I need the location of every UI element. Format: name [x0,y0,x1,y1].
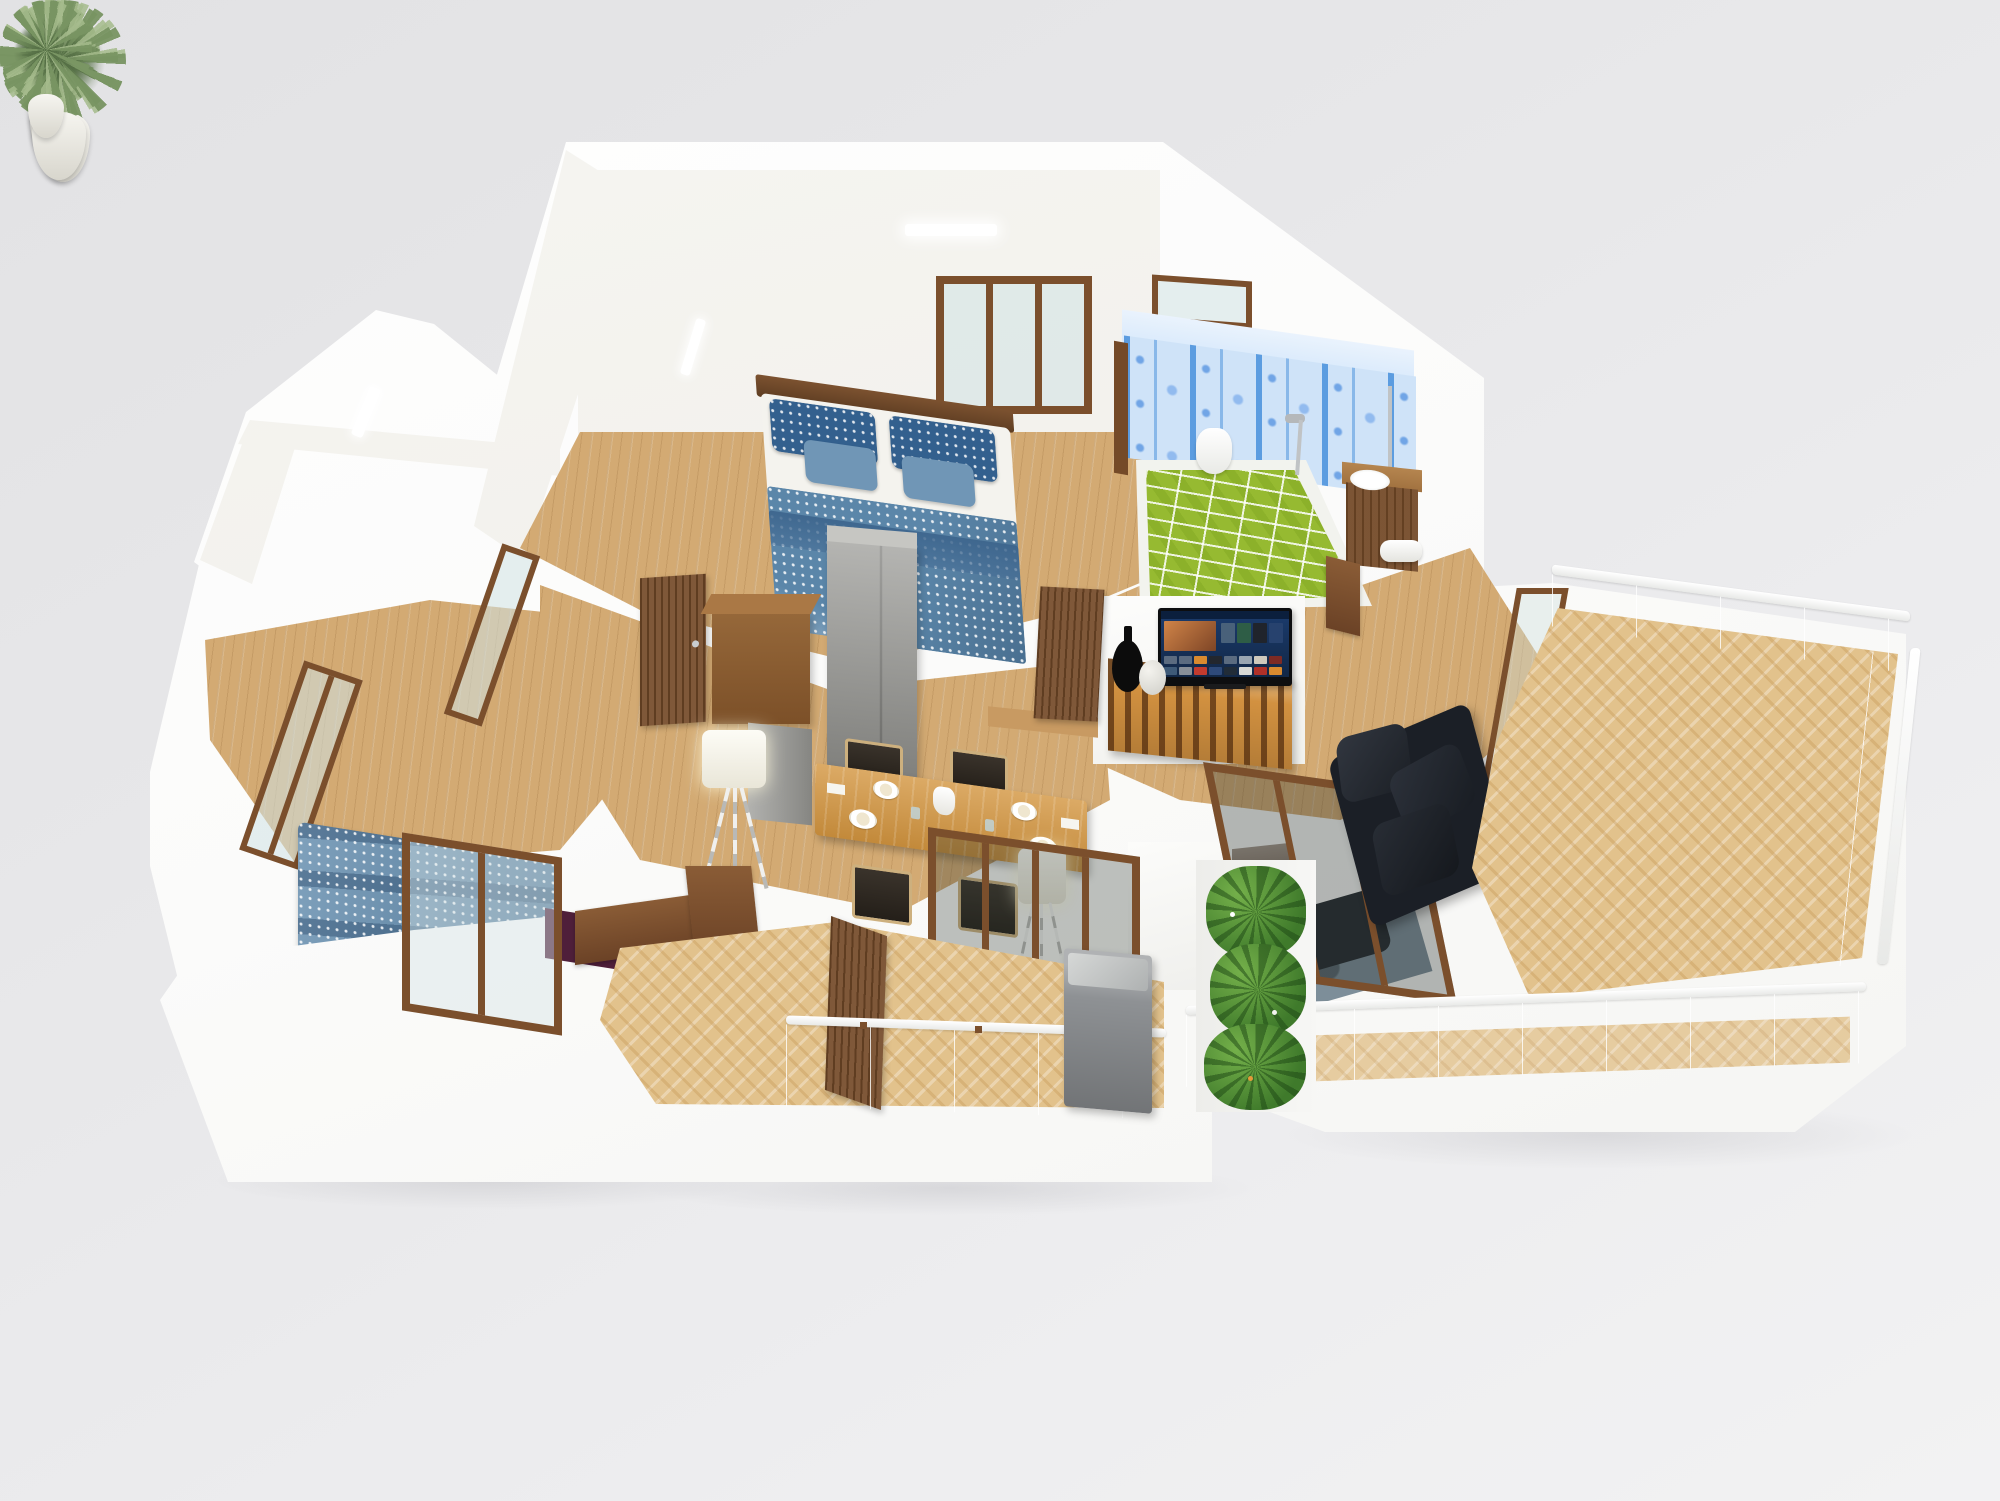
tv-app-tile [1179,667,1192,675]
tv-app-tile [1209,656,1222,664]
potted-plant-bedroom-right [0,170,98,338]
planter-plants [1204,1024,1306,1110]
tv-app-tile [1269,623,1283,643]
cabinet-top-face [701,594,822,614]
tv-app-tiles-row1 [1164,656,1282,664]
glazing-mullion [1032,850,1039,977]
tv [1158,608,1292,686]
potted-plant-hall [0,338,126,524]
potted-plant-sofa [0,524,96,634]
napkin [827,783,845,796]
plate [873,779,899,801]
tv-app-tile [1194,667,1207,675]
tv-stand [1204,684,1246,689]
tv-app-tile [1237,623,1251,643]
tv-app-tile [1254,656,1267,664]
bedroom-open-door [640,574,706,727]
tv-app-tile [1254,667,1267,675]
lamp-shade [702,730,766,788]
bed-glass-screen [402,832,562,1035]
ceiling-light-bar [905,224,997,236]
screen-mullion [478,852,485,1015]
floorplan-scene [0,0,2000,1501]
plant-leaves [0,0,92,100]
bedroom-triple-window [936,276,1092,414]
hall-open-door [1034,586,1105,721]
white-vase [1139,660,1166,695]
plate [1011,800,1037,822]
toilet [1196,428,1232,474]
rail-clip [975,1026,982,1033]
tv-app-tile [1269,656,1282,664]
rail-clip [860,1022,867,1029]
tv-app-tile [1253,623,1267,643]
towel-roll [1380,540,1422,562]
tv-app-tile [1209,667,1222,675]
tv-app-tile [1164,667,1177,675]
dining-chair [852,864,912,926]
window-mullion [1035,284,1042,406]
planter-niche [1196,860,1316,1112]
black-vase-body [1112,640,1143,692]
tv-app-tiles-row2 [1164,667,1282,675]
tv-screen [1161,611,1289,677]
tub-side-panel [1326,556,1360,636]
window-mullion [986,284,993,406]
tv-featured-image [1164,621,1216,651]
jug [933,785,955,816]
tv-header-bar [1161,611,1289,619]
wood-cabinet [712,612,810,724]
glass-cup [911,806,920,819]
shower-pole-2 [1388,386,1392,472]
bathroom-door-trim [1114,341,1128,475]
tv-app-tile [1224,667,1237,675]
potted-plant-terrace [0,634,118,820]
tv-app-tile [1239,656,1252,664]
door-handle [692,640,699,647]
tv-thumbnails [1221,623,1283,643]
glass-cup [985,819,994,832]
outdoor-appliance [1064,948,1152,1114]
tv-app-tile [1194,656,1207,664]
tv-app-tile [1221,623,1235,643]
tv-app-tile [1164,656,1177,664]
tv-app-tile [1224,656,1237,664]
napkin [1061,817,1079,830]
planter-plants [1210,944,1306,1036]
tv-app-tile [1179,656,1192,664]
planter-flower [1230,912,1235,917]
appliance-lid [1068,953,1148,992]
planter-flower [1248,1076,1253,1081]
planter-flower [1272,1010,1277,1015]
tv-app-tile [1269,667,1282,675]
plate [849,808,877,831]
tv-app-tile [1239,667,1252,675]
potted-plant-second-bedroom [0,820,92,960]
